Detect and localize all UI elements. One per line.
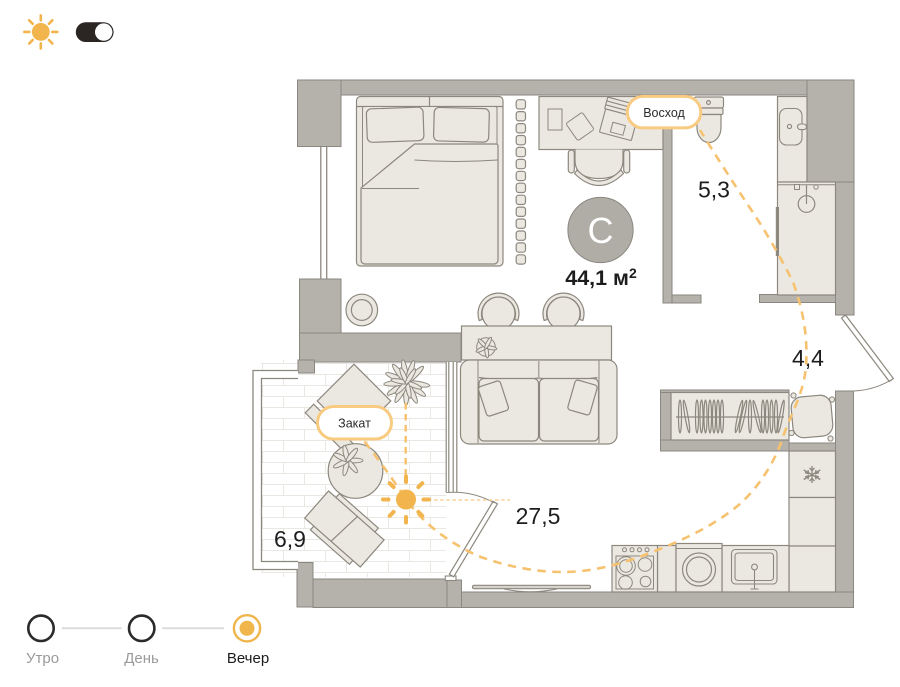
- svg-text:6,9: 6,9: [274, 526, 306, 552]
- svg-text:День: День: [124, 650, 159, 667]
- svg-text:27,5: 27,5: [516, 503, 561, 529]
- svg-text:44,1 м2: 44,1 м2: [565, 265, 637, 290]
- svg-text:4,4: 4,4: [792, 345, 824, 371]
- svg-text:С: С: [588, 210, 614, 251]
- svg-text:5,3: 5,3: [698, 177, 730, 203]
- svg-text:Утро: Утро: [26, 650, 59, 667]
- svg-text:Вечер: Вечер: [227, 650, 269, 667]
- svg-text:Восход: Восход: [643, 106, 685, 120]
- svg-text:Закат: Закат: [338, 417, 371, 431]
